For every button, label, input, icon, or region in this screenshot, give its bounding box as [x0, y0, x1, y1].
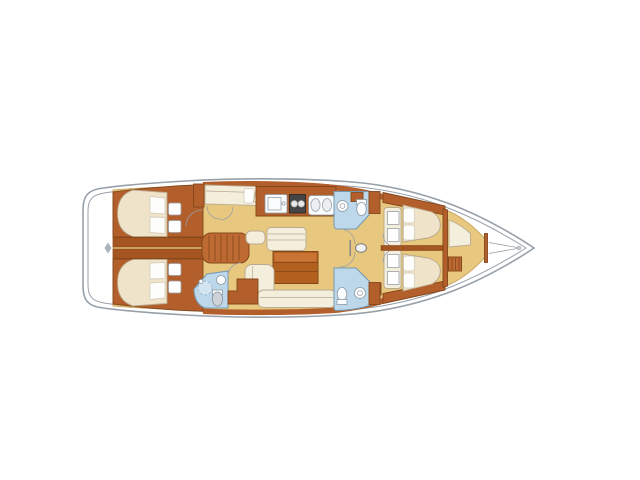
burner-icon — [291, 201, 298, 208]
chain-locker-bulkhead — [485, 234, 488, 263]
salon-stool — [246, 231, 265, 244]
forepeak-bulkhead — [443, 209, 448, 288]
shelf-cubby — [388, 229, 400, 242]
bulkhead — [369, 283, 380, 305]
pillow — [404, 256, 415, 271]
toilet-icon — [337, 287, 347, 300]
pillow — [404, 273, 415, 288]
pillow — [150, 197, 165, 215]
forepeak-steps-icon — [449, 257, 462, 271]
pillow — [404, 208, 415, 223]
berth-side-locker — [169, 281, 182, 293]
floor-plan-canvas — [0, 0, 640, 480]
yacht-floor-plan-image — [0, 0, 640, 480]
companionway-steps-icon — [202, 233, 249, 263]
berth-side-locker — [169, 203, 182, 215]
toilet-icon — [357, 202, 367, 215]
pillow — [244, 189, 254, 204]
pillow — [404, 225, 415, 240]
salon-chaise-seat — [267, 228, 306, 251]
sink-icon — [337, 201, 348, 212]
toilet-icon — [212, 292, 222, 306]
salon-table-leaf — [275, 253, 317, 262]
sink-basin-icon — [311, 199, 320, 212]
windlass-icon — [517, 246, 521, 250]
locker — [194, 184, 205, 207]
salon-sofa-aft — [257, 290, 337, 308]
pillow — [150, 282, 165, 300]
forward-cabins-divider — [381, 246, 444, 251]
engine-box-starboard — [113, 249, 203, 259]
bulkhead — [369, 192, 380, 214]
toilet-tank — [337, 300, 347, 305]
sink-basin-icon — [322, 199, 331, 212]
engine-box-port — [113, 238, 203, 248]
shelf-cubby — [388, 272, 400, 285]
sink-icon — [217, 276, 226, 285]
aft-cabin-port — [113, 185, 203, 237]
aft-cabin-starboard — [113, 259, 203, 311]
shelf-cubby — [388, 212, 400, 225]
berth-side-locker — [169, 221, 182, 233]
faucet-icon — [282, 202, 285, 205]
pillow — [150, 217, 165, 234]
mast-post-icon — [356, 244, 367, 253]
berth-side-locker — [169, 264, 182, 276]
shelf-cubby — [388, 255, 400, 268]
galley — [256, 187, 336, 217]
sink-icon — [355, 288, 366, 299]
bulkhead-line — [350, 240, 352, 256]
shower-head-icon — [199, 280, 203, 284]
pillow — [150, 263, 165, 280]
burner-icon — [298, 201, 305, 208]
